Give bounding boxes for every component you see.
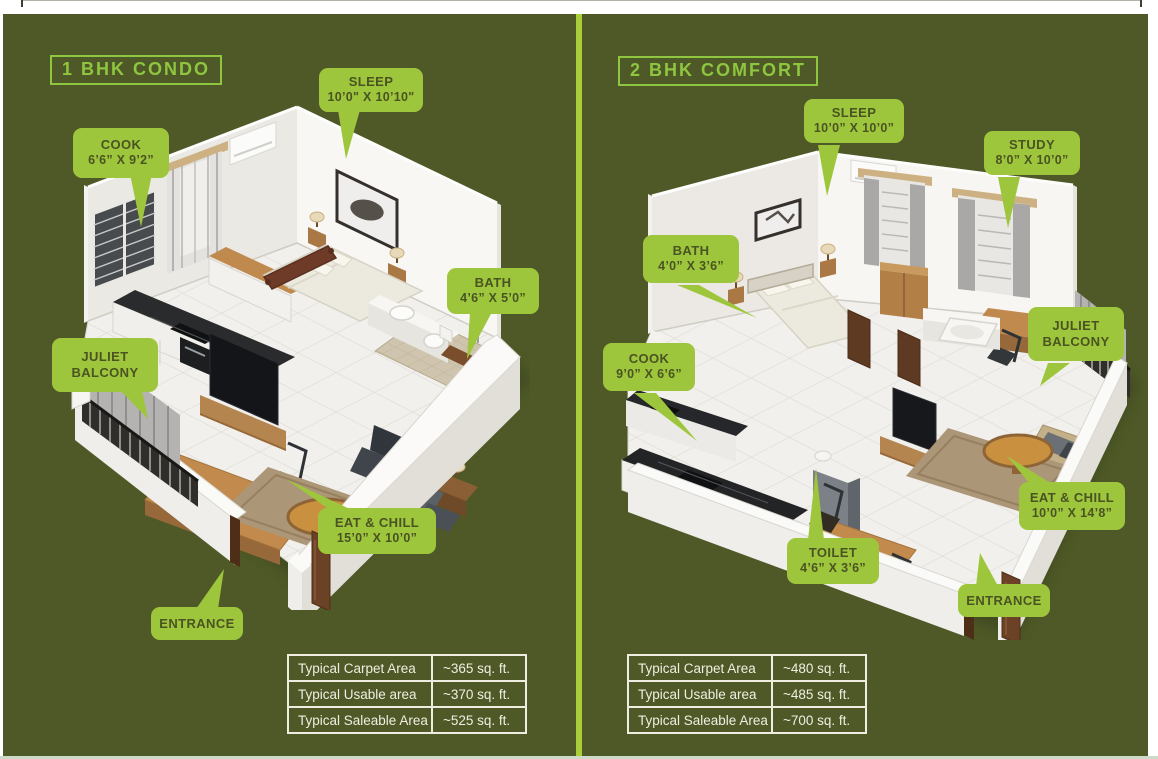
crop-mark-right (1140, 0, 1142, 7)
area-table-2bhk: Typical Carpet Area ~480 sq. ft. Typical… (627, 654, 867, 734)
area-value: ~480 sq. ft. (772, 655, 866, 681)
area-table-1bhk: Typical Carpet Area ~365 sq. ft. Typical… (287, 654, 527, 734)
callout-label: COOK (609, 351, 689, 367)
callout-dims: 9’0” X 6’6” (609, 367, 689, 382)
callout-label: EAT & CHILL (1025, 490, 1119, 506)
callout-dims: 4’0” X 3’6” (649, 259, 733, 274)
callout-label: JULIET BALCONY (1034, 318, 1118, 350)
callout-label: TOILET (793, 545, 873, 561)
callout-label: STUDY (990, 137, 1074, 153)
top-trim-line (21, 0, 1142, 1)
callout-eat-chill: EAT & CHILL 15’0” X 10’0” (318, 508, 436, 554)
area-label: Typical Carpet Area (628, 655, 772, 681)
callout-label: SLEEP (325, 74, 417, 90)
area-label: Typical Carpet Area (288, 655, 432, 681)
area-value: ~525 sq. ft. (432, 707, 526, 733)
callout-study: STUDY 8’0” X 10’0” (984, 131, 1080, 175)
callout-cook: COOK 9’0” X 6’6” (603, 343, 695, 391)
callout-dims: 10’0" X 10’10" (325, 90, 417, 105)
callout-cook: COOK 6’6” X 9’2” (73, 128, 169, 178)
callout-dims: 8’0” X 10’0” (990, 153, 1074, 168)
brochure-page: 1 BHK CONDO COOK 6’6” X 9’2” SLEEP 10’0"… (0, 0, 1158, 759)
area-label: Typical Usable area (628, 681, 772, 707)
table-row: Typical Carpet Area ~365 sq. ft. (288, 655, 526, 681)
callout-label: JULIET BALCONY (58, 349, 152, 381)
study-window (952, 188, 1037, 298)
panel-1bhk: 1 BHK CONDO COOK 6’6” X 9’2” SLEEP 10’0"… (4, 14, 576, 756)
area-value: ~485 sq. ft. (772, 681, 866, 707)
callout-dims: 10’0” X 14’8” (1025, 506, 1119, 521)
area-label: Typical Saleable Area (288, 707, 432, 733)
sleep-window (858, 168, 932, 271)
callout-juliet-balcony: JULIET BALCONY (52, 338, 158, 392)
callout-sleep: SLEEP 10’0" X 10’10" (319, 68, 423, 112)
panel-2bhk: 2 BHK COMFORT SLEEP 10’0” X 10’0” STUDY … (582, 14, 1148, 756)
callout-label: COOK (79, 137, 163, 153)
callout-eat-chill: EAT & CHILL 10’0” X 14’8” (1019, 482, 1125, 530)
toilet (815, 451, 831, 461)
area-value: ~370 sq. ft. (432, 681, 526, 707)
table-row: Typical Usable area ~370 sq. ft. (288, 681, 526, 707)
plan-title-1bhk: 1 BHK CONDO (50, 55, 222, 85)
callout-label: BATH (453, 275, 533, 291)
callout-label: ENTRANCE (964, 593, 1044, 609)
callout-juliet-balcony: JULIET BALCONY (1028, 307, 1124, 361)
plan-title-2bhk: 2 BHK COMFORT (618, 56, 818, 86)
callout-entrance: ENTRANCE (958, 584, 1050, 617)
area-value: ~365 sq. ft. (432, 655, 526, 681)
callout-label: EAT & CHILL (324, 515, 430, 531)
callout-dims: 6’6” X 9’2” (79, 153, 163, 168)
callout-dims: 4’6” X 5’0” (453, 291, 533, 306)
callout-toilet: TOILET 4’6” X 3’6” (787, 538, 879, 584)
callout-sleep: SLEEP 10’0” X 10’0” (804, 99, 904, 143)
callout-dims: 15’0” X 10’0” (324, 531, 430, 546)
callout-bath: BATH 4’0” X 3’6” (643, 235, 739, 283)
callout-bath: BATH 4’6” X 5’0” (447, 268, 539, 314)
table-row: Typical Usable area ~485 sq. ft. (628, 681, 866, 707)
callout-label: BATH (649, 243, 733, 259)
callout-label: SLEEP (810, 105, 898, 121)
callout-entrance: ENTRANCE (151, 607, 243, 640)
sink (390, 306, 414, 320)
table-row: Typical Saleable Area ~525 sq. ft. (288, 707, 526, 733)
table-row: Typical Carpet Area ~480 sq. ft. (628, 655, 866, 681)
table-row: Typical Saleable Area ~700 sq. ft. (628, 707, 866, 733)
crop-mark-left (21, 0, 23, 7)
callout-dims: 10’0” X 10’0” (810, 121, 898, 136)
callout-dims: 4’6” X 3’6” (793, 561, 873, 576)
area-label: Typical Saleable Area (628, 707, 772, 733)
area-value: ~700 sq. ft. (772, 707, 866, 733)
wardrobe (880, 262, 928, 320)
area-label: Typical Usable area (288, 681, 432, 707)
callout-label: ENTRANCE (157, 616, 237, 632)
